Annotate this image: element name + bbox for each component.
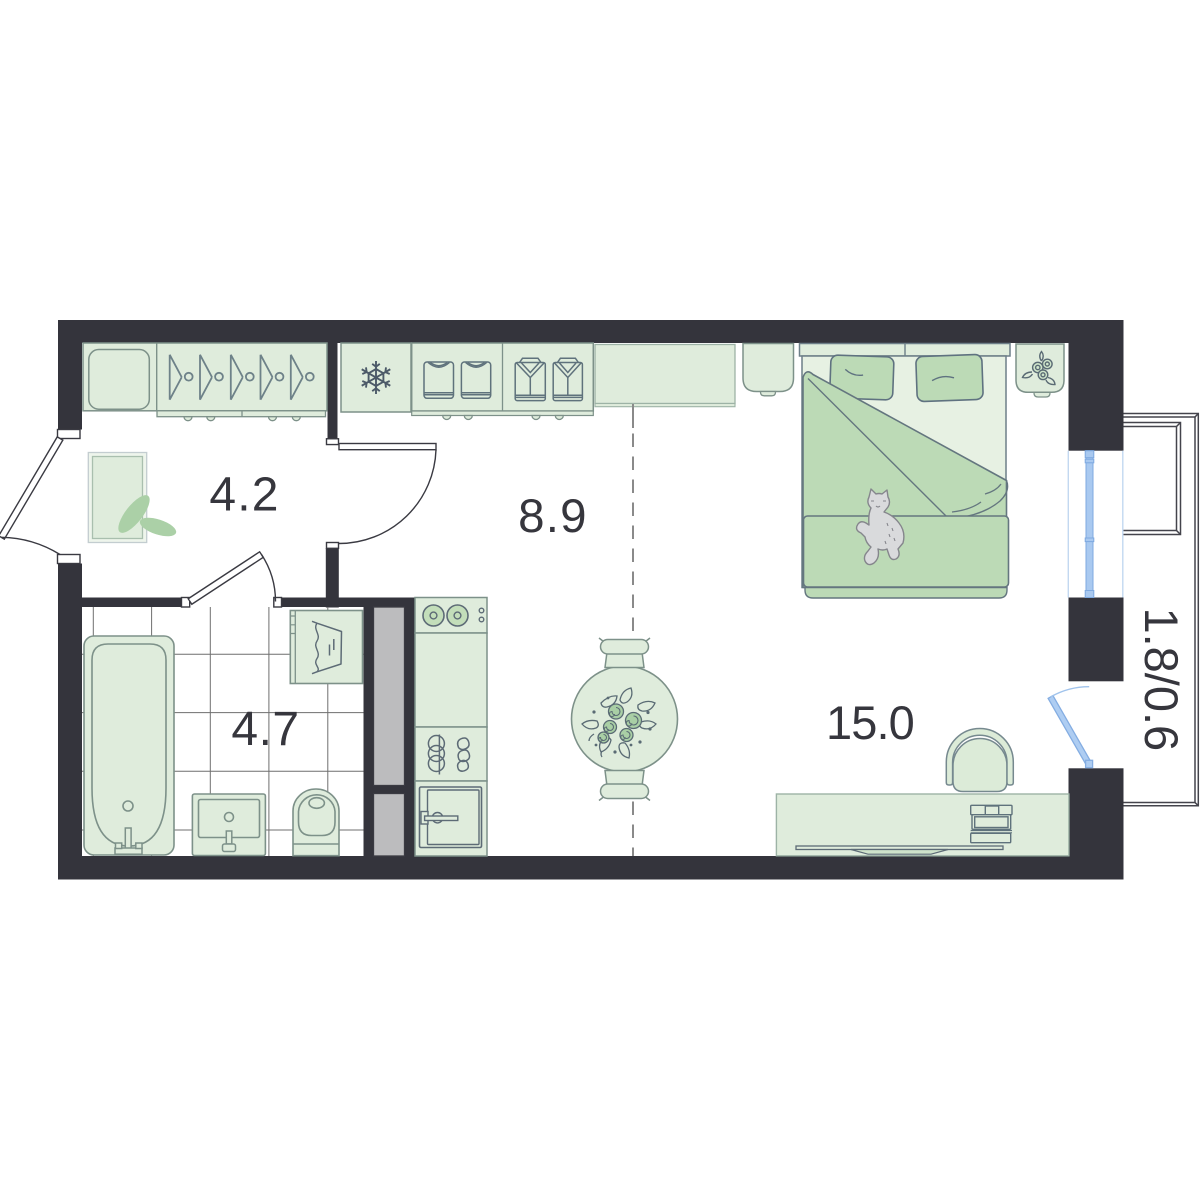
svg-text:4.7: 4.7 [231, 703, 299, 756]
svg-text:4.2: 4.2 [209, 469, 279, 522]
svg-text:15.0: 15.0 [826, 696, 914, 749]
svg-text:8.9: 8.9 [518, 490, 588, 543]
svg-text:1.8/0.6: 1.8/0.6 [1135, 607, 1188, 751]
